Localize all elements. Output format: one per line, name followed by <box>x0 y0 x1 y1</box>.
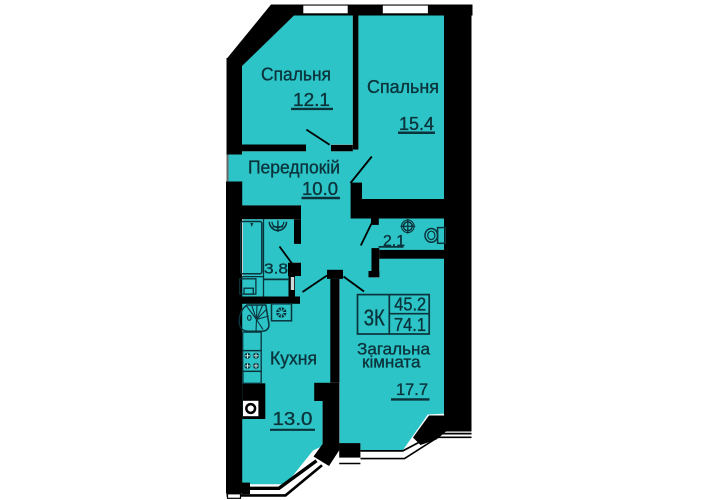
svg-text:3К: 3К <box>364 304 385 330</box>
svg-text:15.4: 15.4 <box>399 114 434 134</box>
svg-text:Передпокій: Передпокій <box>248 157 340 178</box>
svg-text:10.0: 10.0 <box>302 179 338 199</box>
svg-text:3.8: 3.8 <box>264 261 288 278</box>
svg-text:кімната: кімната <box>362 352 421 371</box>
svg-text:13.0: 13.0 <box>273 409 313 429</box>
svg-text:45.2: 45.2 <box>394 294 426 315</box>
svg-text:74.1: 74.1 <box>394 314 426 335</box>
svg-text:17.7: 17.7 <box>396 380 428 399</box>
svg-text:Спальня: Спальня <box>261 64 331 85</box>
svg-text:12.1: 12.1 <box>293 90 330 110</box>
svg-text:Спальня: Спальня <box>367 76 439 97</box>
svg-text:Кухня: Кухня <box>270 348 317 369</box>
